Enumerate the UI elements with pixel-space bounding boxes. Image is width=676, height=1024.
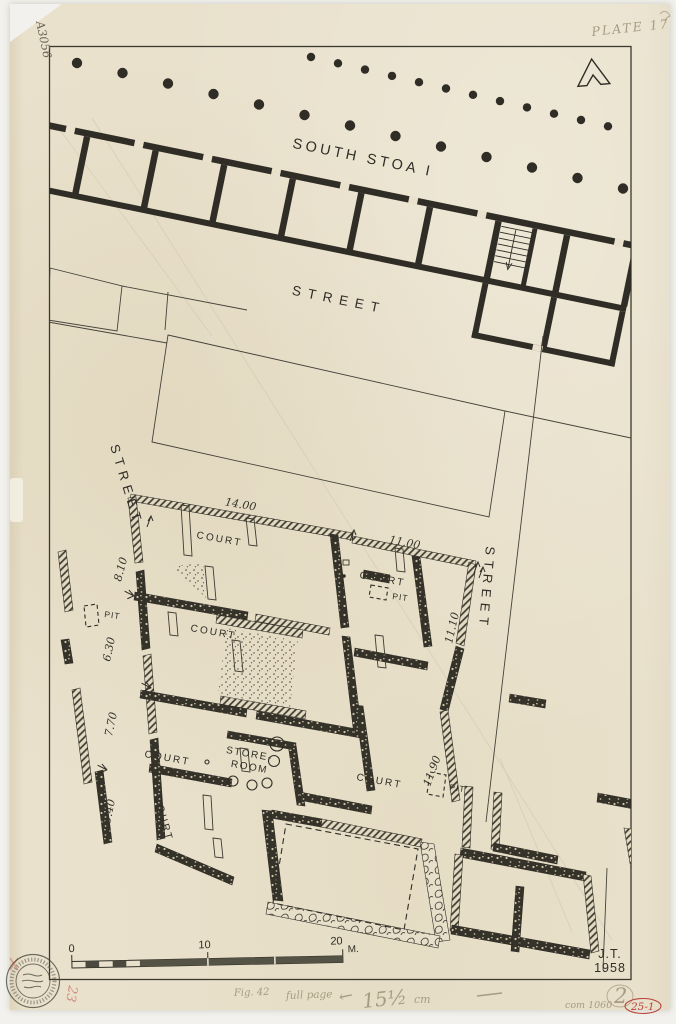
catalog-number: A3056: [33, 19, 55, 60]
plate-number: PLATE 17: [590, 16, 671, 39]
dim-1190: 11.90: [421, 754, 444, 788]
pit-label-1: PIT: [104, 609, 121, 621]
scale-tick-10: 10: [198, 939, 210, 951]
pit-label-2: PIT: [392, 591, 409, 603]
paper-repair-patch: [10, 478, 23, 522]
colonnade-dots-row-lower: [72, 58, 628, 194]
scale-tick-20: 20: [330, 935, 342, 947]
well-dot: [342, 574, 346, 578]
court-label-5: COURT: [356, 772, 404, 791]
court-label-3: COURT: [190, 623, 238, 642]
red-code: 25-1: [630, 1001, 655, 1013]
fig-note-2: full page: [285, 988, 333, 1002]
signature: J.T. 1958: [594, 947, 626, 975]
red-stamp-number: 23: [62, 983, 80, 1003]
open-lot-outline: [152, 335, 505, 517]
dim-630: 6.30: [100, 636, 118, 663]
court-label-6: COURT: [151, 795, 174, 843]
pencil-dash: [477, 993, 502, 996]
scale-bar: 0 10 20 M.: [68, 935, 359, 969]
colonnade-dots-row-upper: [307, 53, 639, 137]
street-label-top: STREET: [291, 283, 387, 317]
signature-year: 1958: [594, 961, 626, 975]
fig-note: Fig. 42: [233, 987, 270, 999]
street-label-right: STREET: [476, 546, 498, 631]
size-unit: cm: [414, 993, 431, 1006]
agora-excavations-stamp: [7, 955, 60, 1008]
stoa-back-rooms-outline: [48, 268, 247, 331]
dim-810: 8.10: [111, 556, 130, 583]
bottom-pencil-notes: Fig. 42 full page ← 15½ cm 2 com 1060 25…: [233, 984, 661, 1014]
size-note: 15½: [361, 984, 408, 1013]
stamp-center-text: [22, 974, 43, 988]
south-stoa-label: SOUTH STOA I: [291, 136, 435, 180]
scanned-plate: SOUTH STOA I STREET STREET STREET COURT …: [0, 0, 676, 1024]
street-label-left: STREET: [107, 442, 146, 527]
court-label-2: COURT: [359, 570, 407, 589]
paper-creases: [60, 118, 612, 940]
north-arrow-icon: [576, 58, 610, 87]
scale-unit: M.: [348, 944, 359, 955]
left-arrow-glyph: ←: [337, 985, 355, 1008]
scale-tick-0: 0: [68, 943, 74, 955]
pencil-code: com 1060: [565, 1000, 612, 1011]
plan-content: SOUTH STOA I STREET STREET STREET COURT …: [23, 53, 641, 975]
plan-drawing: SOUTH STOA I STREET STREET STREET COURT …: [0, 0, 676, 1024]
dim-770: 7.70: [102, 711, 120, 738]
court-label-1: COURT: [196, 530, 244, 549]
signature-initials: J.T.: [598, 947, 621, 961]
